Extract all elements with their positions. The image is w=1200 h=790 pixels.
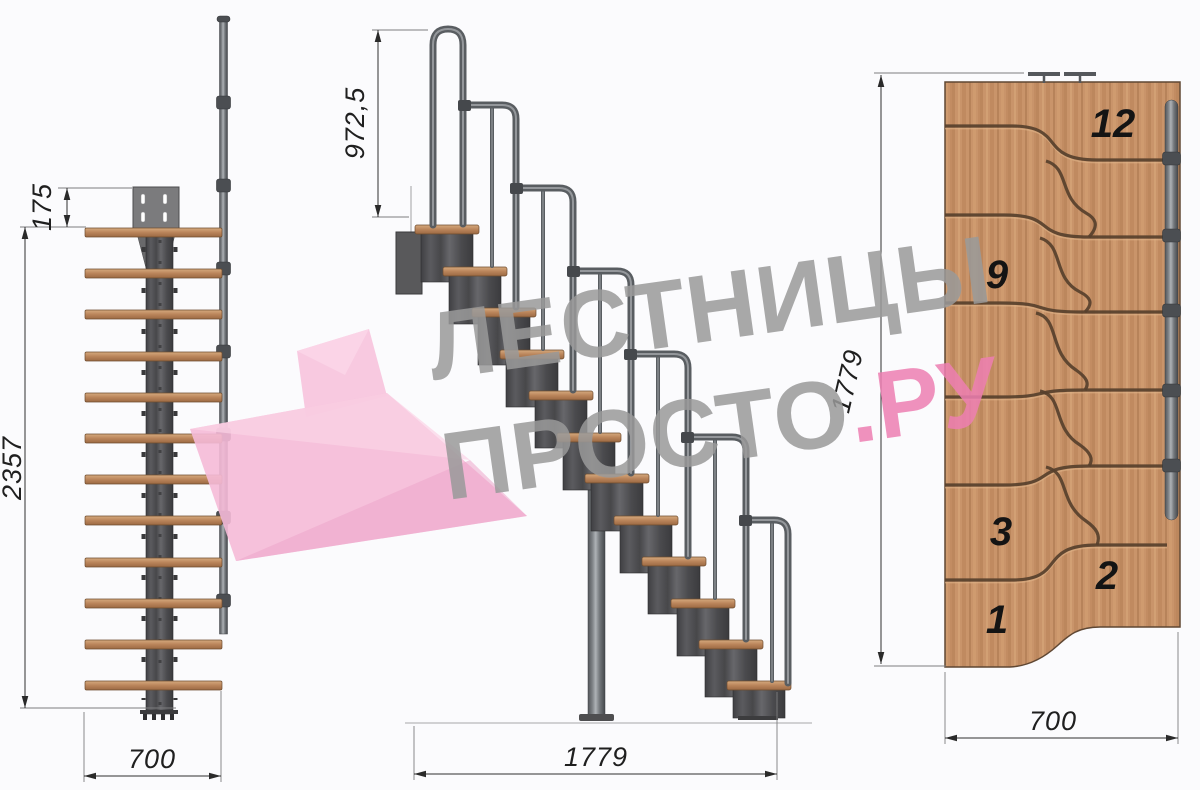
dim-972-label: 972,5 — [340, 87, 370, 160]
step-number-1: 1 — [986, 598, 1008, 642]
base-foot — [140, 710, 178, 714]
pole-flange — [579, 714, 614, 721]
dim-700-front-label: 700 — [128, 744, 176, 774]
dim-175-label: 175 — [27, 183, 57, 231]
front-view: 175 2357 700 — [0, 16, 231, 782]
mount-plate — [133, 187, 179, 230]
dim-2357-label: 2357 — [0, 436, 27, 501]
stair-foot — [738, 716, 778, 720]
handrail-hoop — [433, 29, 463, 225]
technical-drawing-page: 175 2357 700 — [0, 0, 1200, 790]
base-anchors — [143, 714, 174, 720]
wall-bracket — [396, 232, 422, 294]
handrail-post-front — [220, 18, 228, 634]
staircase-drawing: 175 2357 700 — [0, 0, 1200, 790]
post-cap — [217, 16, 230, 22]
watermark-line2-pink: .РУ — [841, 337, 1007, 464]
step-number-2: 2 — [1095, 554, 1118, 598]
dim-700-plan-label: 700 — [1029, 706, 1077, 736]
step-number-12: 12 — [1091, 102, 1136, 146]
step-number-3: 3 — [990, 510, 1012, 554]
dim-1779-side-label: 1779 — [564, 742, 628, 772]
